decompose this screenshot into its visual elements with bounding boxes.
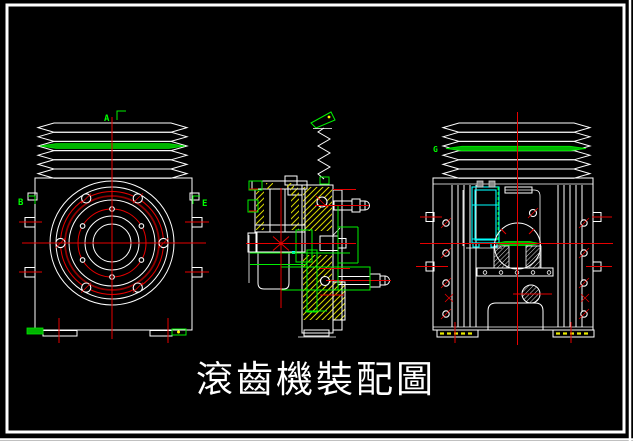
base-green-pad <box>27 328 43 334</box>
compression-spring <box>318 128 330 184</box>
label-g-text: G <box>433 145 438 154</box>
gear-assembly <box>248 181 307 289</box>
label-e-text: E <box>202 199 207 209</box>
section-label-b: B <box>18 196 35 208</box>
cad-canvas: A B E <box>0 0 633 441</box>
pulley-stack-rear: G <box>433 123 590 178</box>
belt-line-rear <box>446 146 586 150</box>
yellow-dot <box>177 331 180 334</box>
assembly-drawing: A B E <box>0 0 633 441</box>
dome-bearing <box>477 217 553 276</box>
housing-rear <box>426 178 601 337</box>
section-view <box>246 112 391 337</box>
pedestal <box>488 303 543 330</box>
section-label-e: E <box>193 196 207 209</box>
drawing-title: 滾齒機裝配圖 <box>196 358 436 401</box>
section-label-a: A <box>104 111 126 124</box>
fixture-cyan-column <box>466 181 502 248</box>
rear-view: G <box>416 112 613 345</box>
wedge-gib <box>311 112 335 129</box>
label-a-text: A <box>104 114 110 124</box>
front-view: A B E <box>18 111 209 343</box>
label-b-text: B <box>18 198 24 208</box>
